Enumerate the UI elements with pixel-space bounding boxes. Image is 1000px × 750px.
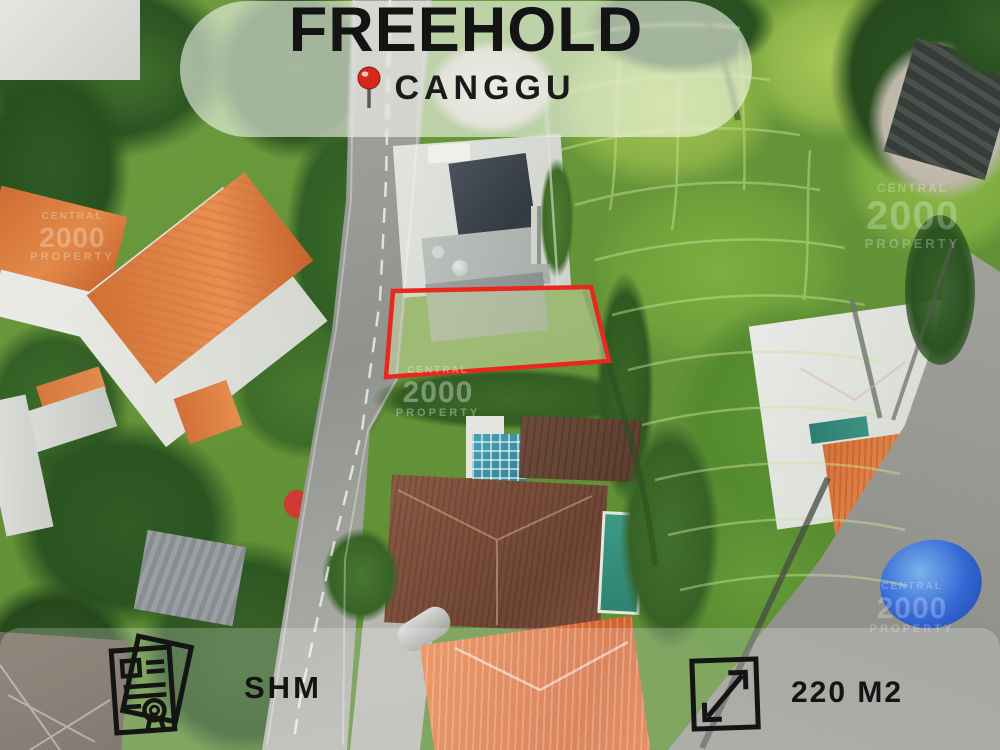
footer-band: SHM 220 M2 (0, 628, 1000, 750)
land-size-badge: 220 M2 (687, 653, 903, 733)
roof-ridges (398, 362, 905, 625)
boundary-wall (893, 242, 953, 420)
page-title: FREEHOLD (289, 0, 644, 62)
location-line: CANGGU (356, 66, 575, 110)
title-banner: FREEHOLD CANGGU (180, 1, 752, 137)
property-flyer: CENTRAL 2000 PROPERTY CENTRAL 2000 PROPE… (0, 0, 1000, 750)
location-pin-icon (356, 66, 382, 110)
plot-boundary (386, 287, 609, 377)
location-label: CANGGU (394, 69, 575, 108)
certificate-label: SHM (244, 670, 322, 706)
land-size-label: 220 M2 (791, 676, 903, 710)
land-certificate-icon (100, 633, 196, 743)
certificate-badge: SHM (100, 633, 322, 743)
area-expand-icon (687, 652, 763, 734)
